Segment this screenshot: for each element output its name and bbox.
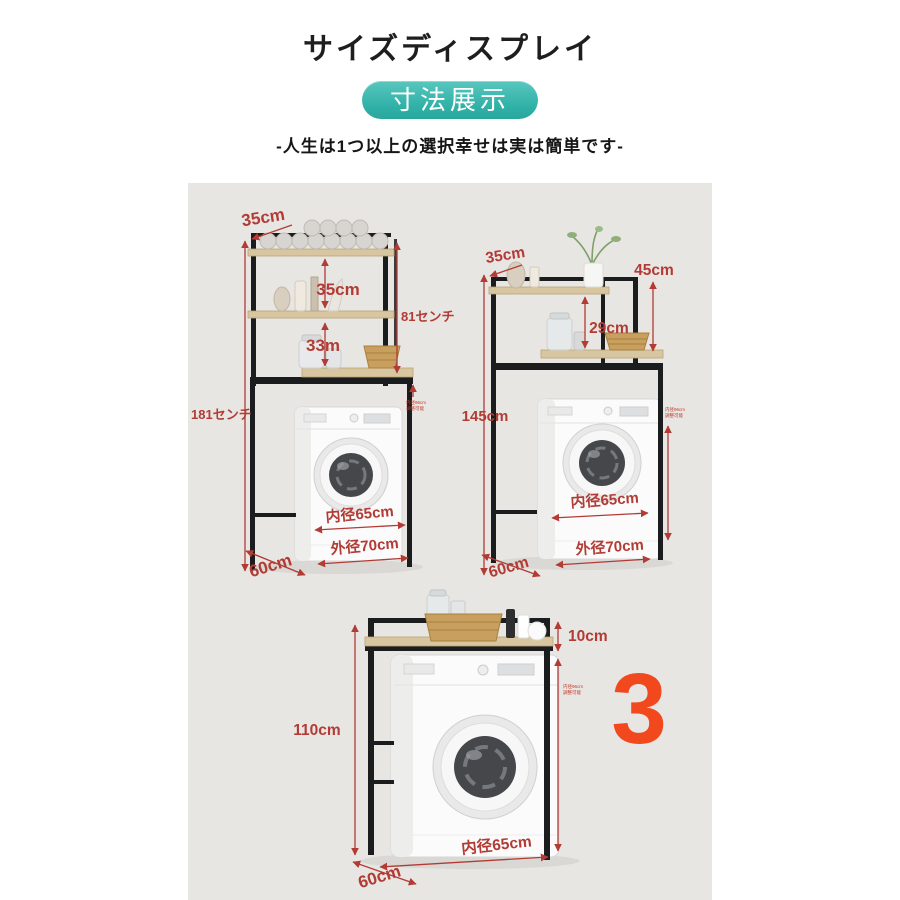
diagram-tall-rack: 35cm 35cm 33m 81センチ 181センチ 内径65cm 外径70cm… (191, 205, 454, 581)
style-number-3: 3 (611, 653, 667, 765)
page-subtitle: -人生は1つ以上の選択幸せは実は簡単です- (0, 132, 900, 157)
d1-gap2-label: 33m (306, 336, 340, 355)
size-display-page: サイズディスプレイ 寸法展示 -人生は1つ以上の選択幸せは実は簡単です- (0, 0, 900, 900)
d3-note-line1: 内径96cm (563, 683, 583, 690)
d3-clearance-label: 10cm (568, 628, 608, 645)
diagram-low-rack: 10cm 110cm 内径65cm 60cm 内径96cm 調整可能 3 (293, 590, 667, 892)
dimension-badge: 寸法展示 (362, 81, 538, 119)
d1-total-height-label: 181センチ (191, 407, 252, 422)
d1-note-line1: 内径96cm (406, 399, 426, 406)
d2-note-line1: 内径96cm (665, 406, 685, 413)
d2-gap-label: 29cm (589, 320, 629, 337)
shelf-items-3 (425, 590, 546, 641)
d3-total-height-label: 110cm (293, 722, 340, 739)
d2-total-height-label: 145cm (462, 408, 509, 425)
washing-machine-2 (538, 399, 661, 559)
d2-upper-right-label: 45cm (634, 262, 674, 279)
d3-note-line2: 調整可能 (563, 689, 581, 696)
dimension-diagram-canvas: 35cm 35cm 33m 81センチ 181センチ 内径65cm 外径70cm… (188, 183, 712, 900)
d1-top-width-label: 35cm (240, 205, 286, 231)
d1-note-line2: 調整可能 (406, 405, 424, 412)
washing-machine-3 (391, 655, 559, 857)
page-title: サイズディスプレイ (0, 24, 900, 68)
d2-note-line2: 調整可能 (665, 412, 683, 419)
d1-right-height-label: 81センチ (401, 309, 454, 324)
product-photo: 35cm 35cm 33m 81センチ 181センチ 内径65cm 外径70cm… (188, 183, 712, 900)
d1-gap1-label: 35cm (316, 280, 359, 299)
header: サイズディスプレイ 寸法展示 -人生は1つ以上の選択幸せは実は簡単です- (0, 0, 900, 157)
diagram-mid-rack: 35cm 45cm 29cm 145cm 内径65cm 外径70cm 60cm … (462, 226, 686, 581)
